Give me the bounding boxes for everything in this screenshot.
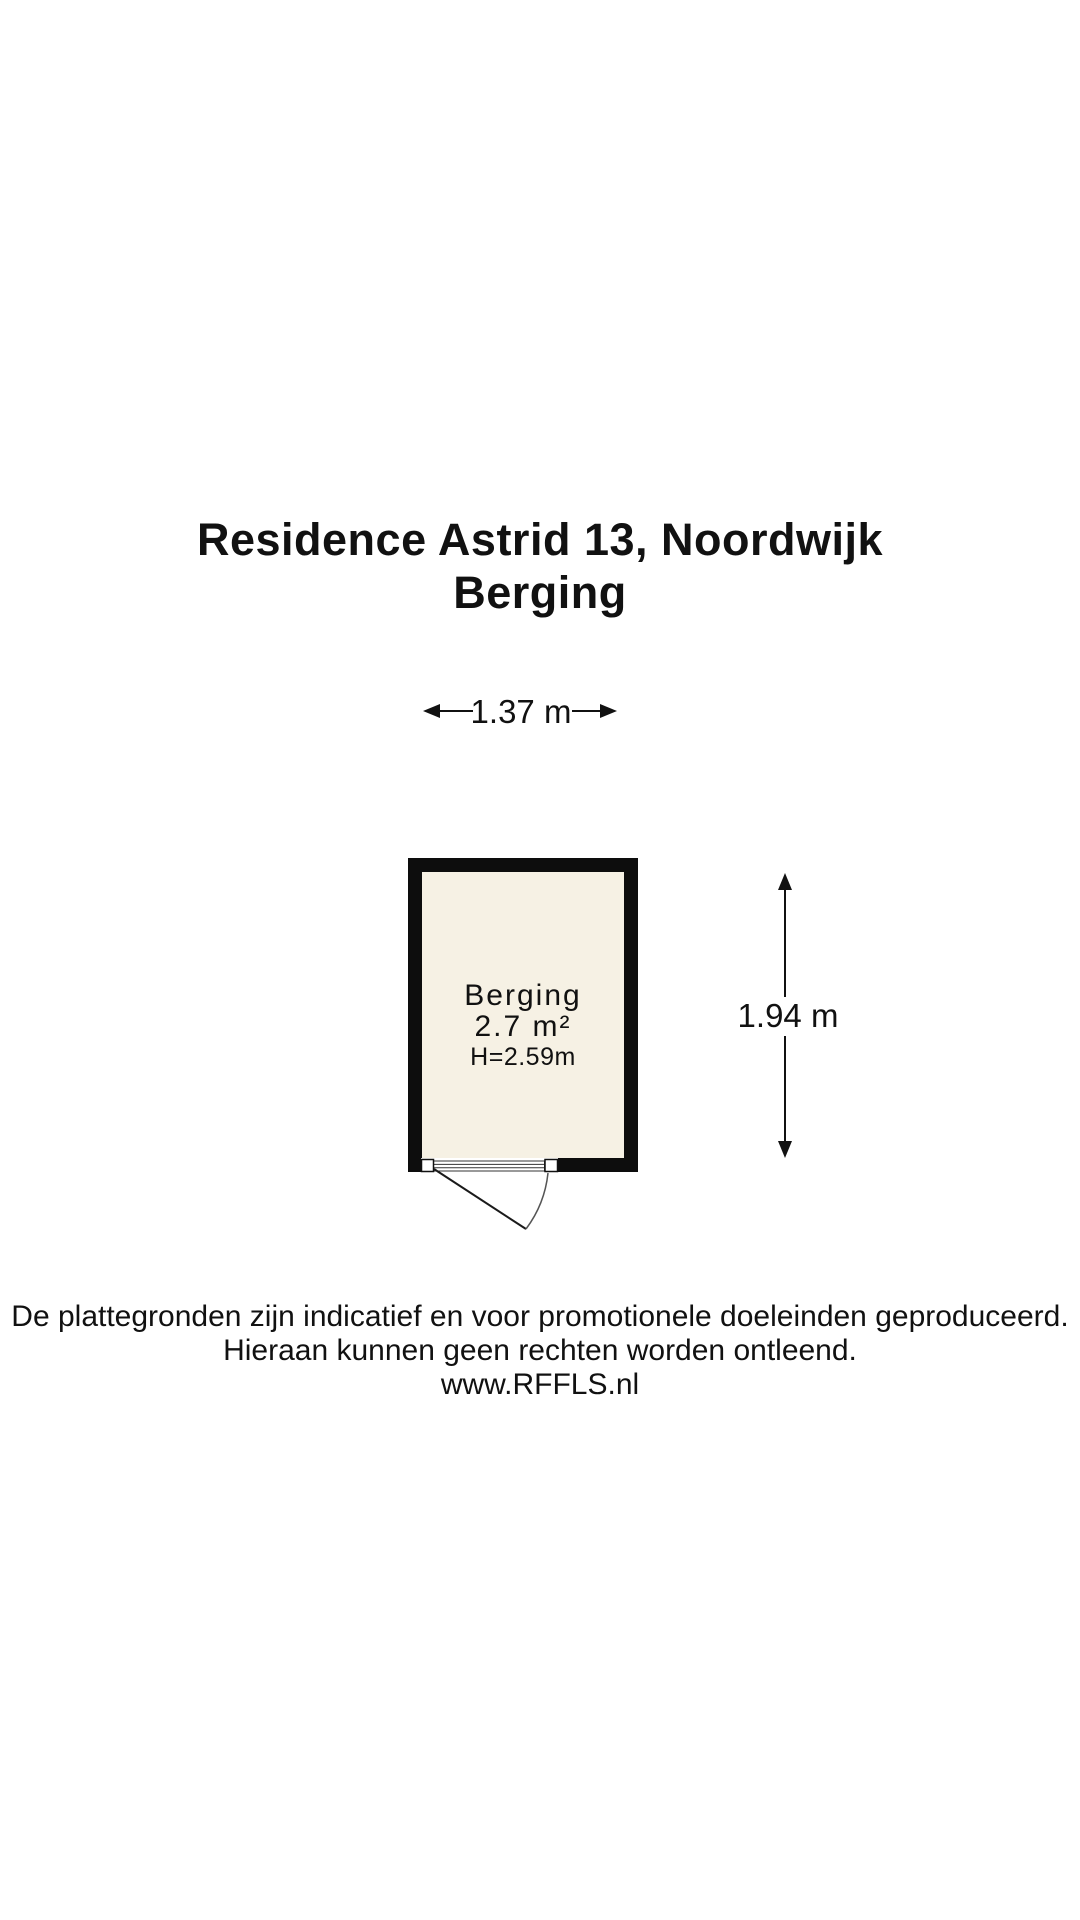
arrow-right-icon — [600, 704, 617, 718]
door-opening — [421, 1158, 558, 1229]
width-dimension: 1.37 m — [423, 693, 617, 730]
disclaimer-line-2: Hieraan kunnen geen rechten worden ontle… — [0, 1334, 1080, 1368]
disclaimer-website: www.RFFLS.nl — [0, 1368, 1080, 1402]
height-dim-label: 1.94 m — [738, 997, 839, 1034]
door-leaf — [434, 1169, 526, 1229]
arrow-down-icon — [778, 1141, 792, 1158]
arrow-left-icon — [423, 704, 440, 718]
door-jamb-right — [545, 1160, 558, 1172]
room-area-label: 2.7 m² — [474, 1010, 571, 1043]
floorplan-page: Residence Astrid 13, Noordwijk Berging 1… — [0, 0, 1080, 1920]
disclaimer-line-1: De plattegronden zijn indicatief en voor… — [0, 1300, 1080, 1334]
height-dimension: 1.94 m — [738, 873, 839, 1158]
width-dim-label: 1.37 m — [471, 693, 572, 730]
disclaimer: De plattegronden zijn indicatief en voor… — [0, 1300, 1080, 1402]
room-name-label: Berging — [464, 979, 581, 1012]
arrow-up-icon — [778, 873, 792, 890]
room-ceiling-height-label: H=2.59m — [470, 1043, 576, 1071]
door-jamb-left — [422, 1160, 434, 1172]
door-sill — [434, 1161, 545, 1171]
floorplan-drawing: 1.37 m Berging 2.7 m² H=2.59m 1.94 m — [0, 0, 1080, 1920]
door-swing-arc — [526, 1173, 548, 1229]
